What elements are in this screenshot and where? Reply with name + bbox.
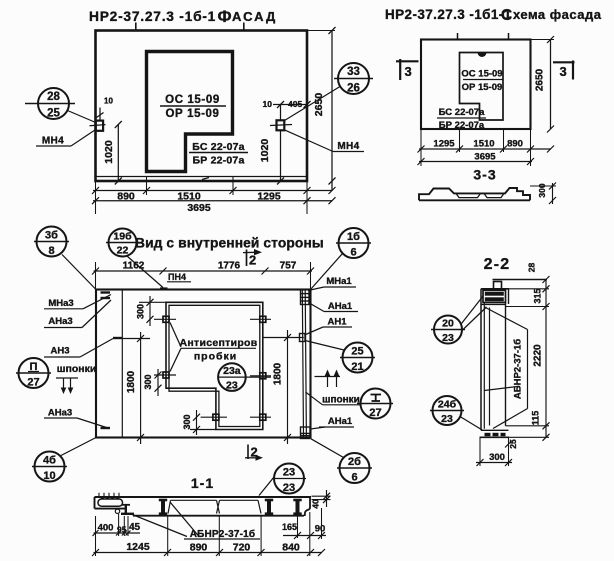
svg-text:26: 26 bbox=[347, 83, 360, 95]
svg-text:45: 45 bbox=[129, 522, 141, 533]
svg-text:хема фасада: хема фасада bbox=[513, 7, 602, 22]
svg-text:400: 400 bbox=[98, 523, 114, 534]
svg-text:720: 720 bbox=[233, 542, 251, 554]
svg-text:25: 25 bbox=[351, 346, 363, 358]
svg-text:95: 95 bbox=[117, 525, 127, 535]
svg-text:2: 2 bbox=[249, 253, 256, 268]
svg-text:33: 33 bbox=[347, 66, 360, 78]
svg-text:МНа1: МНа1 bbox=[326, 276, 352, 287]
svg-text:1800: 1800 bbox=[126, 370, 137, 393]
svg-text:6: 6 bbox=[350, 247, 356, 259]
svg-text:НР2-37.27.3 -1б1-1: НР2-37.27.3 -1б1-1 bbox=[385, 7, 512, 22]
svg-text:300: 300 bbox=[182, 414, 192, 429]
svg-text:1510: 1510 bbox=[473, 139, 494, 150]
svg-text:23: 23 bbox=[442, 332, 454, 344]
svg-text:25: 25 bbox=[47, 108, 60, 120]
svg-text:10: 10 bbox=[104, 97, 113, 106]
svg-text:ПН4: ПН4 bbox=[168, 272, 186, 282]
svg-text:С: С bbox=[501, 7, 512, 24]
svg-text:315: 315 bbox=[533, 288, 543, 303]
svg-text:2220: 2220 bbox=[533, 344, 544, 367]
svg-text:25: 25 bbox=[508, 439, 518, 449]
svg-text:21: 21 bbox=[351, 361, 363, 373]
svg-text:АН1: АН1 bbox=[327, 317, 347, 328]
svg-text:300: 300 bbox=[489, 452, 505, 463]
svg-text:1-1: 1-1 bbox=[191, 475, 214, 491]
svg-text:2650: 2650 bbox=[535, 68, 546, 91]
svg-text:1295: 1295 bbox=[433, 139, 455, 150]
svg-text:23: 23 bbox=[226, 380, 238, 392]
svg-text:22: 22 bbox=[117, 245, 129, 257]
svg-text:1020: 1020 bbox=[103, 140, 115, 164]
svg-text:пробки: пробки bbox=[194, 351, 237, 363]
svg-text:ОР 15-09: ОР 15-09 bbox=[462, 82, 503, 93]
svg-text:АНа1: АНа1 bbox=[328, 301, 353, 312]
svg-text:28: 28 bbox=[47, 91, 60, 103]
svg-text:1020: 1020 bbox=[259, 139, 271, 163]
svg-text:2: 2 bbox=[251, 445, 258, 460]
svg-text:23а: 23а bbox=[223, 365, 241, 377]
svg-text:27: 27 bbox=[27, 377, 39, 389]
svg-text:ОР 15-09: ОР 15-09 bbox=[165, 108, 219, 120]
svg-text:ОС 15-09: ОС 15-09 bbox=[165, 94, 220, 106]
svg-text:АСАД: АСАД bbox=[232, 9, 277, 24]
svg-text:300: 300 bbox=[537, 183, 547, 197]
svg-text:2-2: 2-2 bbox=[484, 256, 511, 273]
svg-text:405: 405 bbox=[288, 99, 302, 109]
svg-text:Антисептиров: Антисептиров bbox=[179, 337, 257, 349]
svg-text:24б: 24б bbox=[438, 399, 457, 411]
svg-text:БР 22-07а: БР 22-07а bbox=[439, 120, 485, 131]
svg-text:3: 3 bbox=[405, 64, 412, 79]
svg-text:757: 757 bbox=[280, 261, 297, 272]
svg-text:27: 27 bbox=[369, 407, 381, 419]
svg-text:БС 22-07а: БС 22-07а bbox=[439, 107, 486, 118]
svg-text:шпонки: шпонки bbox=[322, 395, 360, 406]
svg-text:Ф: Ф bbox=[218, 8, 232, 26]
svg-text:1б: 1б bbox=[347, 231, 360, 243]
svg-text:165: 165 bbox=[282, 522, 297, 532]
svg-text:1162: 1162 bbox=[123, 261, 145, 272]
svg-text:40: 40 bbox=[311, 499, 321, 509]
svg-text:1245: 1245 bbox=[126, 541, 150, 553]
svg-text:115: 115 bbox=[531, 411, 541, 426]
svg-text:МНа3: МНа3 bbox=[48, 298, 73, 309]
svg-text:300: 300 bbox=[136, 304, 146, 319]
svg-text:Вид с внутренней стороны: Вид с внутренней стороны bbox=[135, 236, 324, 251]
svg-text:28: 28 bbox=[527, 263, 537, 273]
svg-text:890: 890 bbox=[190, 542, 208, 554]
svg-text:300: 300 bbox=[143, 374, 153, 389]
svg-text:23: 23 bbox=[283, 467, 295, 479]
svg-text:БР 22-07а: БР 22-07а bbox=[193, 155, 245, 167]
svg-text:10: 10 bbox=[43, 470, 55, 482]
svg-text:6: 6 bbox=[351, 472, 357, 484]
svg-text:10: 10 bbox=[263, 99, 273, 109]
svg-text:1800: 1800 bbox=[273, 362, 284, 385]
svg-text:23: 23 bbox=[441, 413, 453, 425]
svg-text:АНа3: АНа3 bbox=[48, 408, 72, 419]
svg-text:3: 3 bbox=[560, 64, 567, 79]
svg-text:3-3: 3-3 bbox=[473, 167, 496, 183]
svg-text:АБНР2-37-1б: АБНР2-37-1б bbox=[513, 339, 524, 399]
svg-text:20: 20 bbox=[442, 318, 454, 330]
svg-text:19б: 19б bbox=[113, 231, 132, 243]
svg-text:шпонки: шпонки bbox=[57, 363, 97, 375]
svg-text:АБНР2-37-1б: АБНР2-37-1б bbox=[190, 528, 256, 540]
svg-text:БС 22-07а: БС 22-07а bbox=[192, 141, 244, 153]
svg-text:840: 840 bbox=[282, 542, 300, 554]
svg-text:1776: 1776 bbox=[218, 261, 241, 272]
svg-text:АНа1: АНа1 bbox=[328, 416, 353, 427]
svg-text:4б: 4б bbox=[43, 455, 56, 467]
svg-text:2б: 2б bbox=[348, 456, 361, 468]
svg-text:90: 90 bbox=[315, 524, 326, 535]
svg-text:НР2-37.27.3 -1б-1: НР2-37.27.3 -1б-1 bbox=[89, 9, 216, 24]
svg-text:3695: 3695 bbox=[187, 202, 211, 214]
svg-text:МН4: МН4 bbox=[337, 141, 359, 152]
svg-text:23: 23 bbox=[283, 482, 295, 494]
svg-text:АНа3: АНа3 bbox=[48, 316, 72, 327]
svg-text:ОС 15-09: ОС 15-09 bbox=[461, 69, 502, 80]
svg-text:890: 890 bbox=[507, 139, 523, 150]
svg-text:МН4: МН4 bbox=[42, 136, 64, 147]
svg-text:АН3: АН3 bbox=[50, 346, 69, 357]
svg-text:3695: 3695 bbox=[474, 152, 496, 163]
svg-text:3б: 3б bbox=[45, 230, 58, 242]
svg-text:8: 8 bbox=[48, 245, 54, 257]
